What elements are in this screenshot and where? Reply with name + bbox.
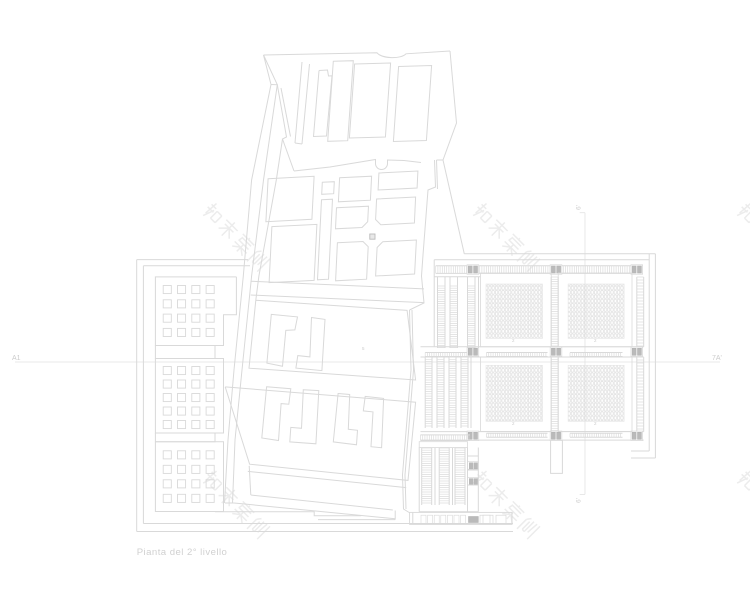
- svg-text:6': 6': [576, 205, 583, 210]
- svg-text:A1: A1: [12, 355, 21, 362]
- svg-text:7A': 7A': [712, 355, 722, 362]
- svg-text:Pianta del 2° livello: Pianta del 2° livello: [137, 547, 228, 558]
- svg-text:6': 6': [576, 498, 583, 503]
